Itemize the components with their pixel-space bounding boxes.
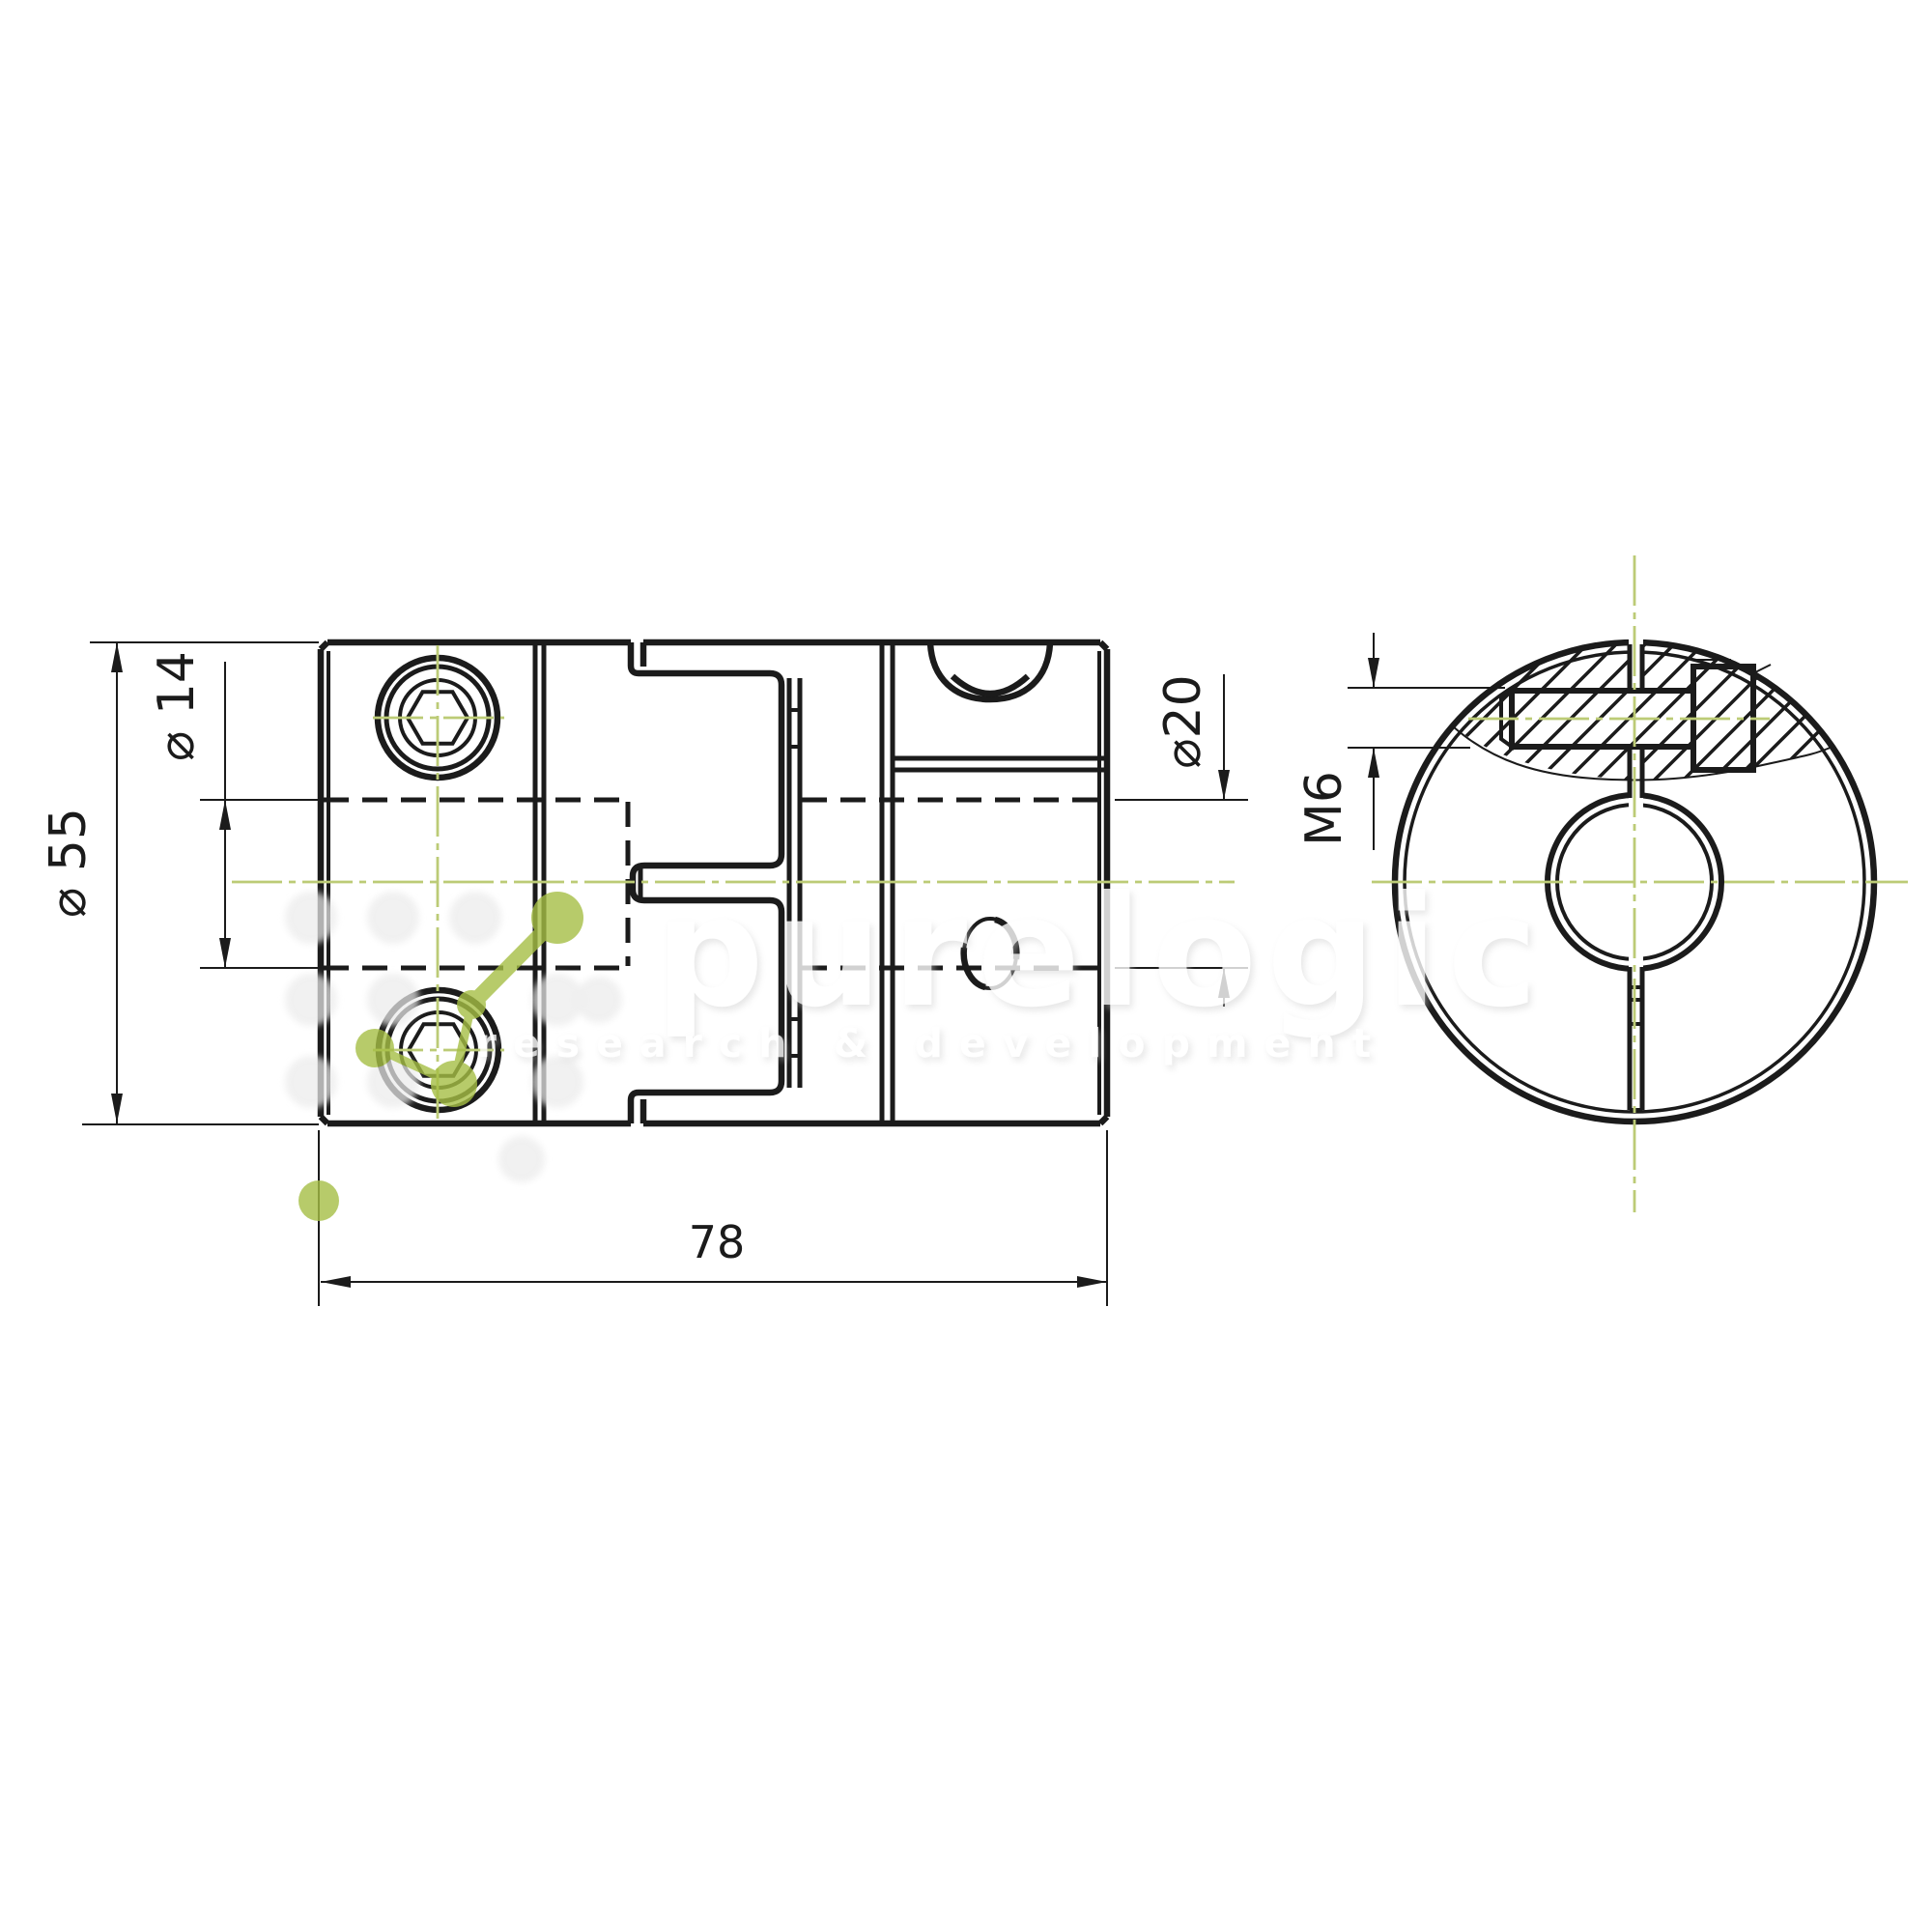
len78-label: 78 [689,1216,746,1268]
watermark-brand: purelogic purelogic [655,864,1550,1045]
technical-drawing-svg: ⌀ 55 ⌀ 14 ⌀20 M6 [0,0,1932,1932]
watermark-tagline: research & development research & develo… [477,1020,1391,1070]
set-screw-recess [893,643,1107,770]
dia55-label: ⌀ 55 [40,808,98,918]
svg-text:research & development: research & development [477,1020,1388,1066]
dia20-label: ⌀20 [1154,674,1212,768]
m6-label: M6 [1295,771,1353,846]
dimension-78: 78 [319,1130,1107,1306]
svg-text:purelogic: purelogic [655,864,1548,1041]
drawing-canvas: ⌀ 55 ⌀ 14 ⌀20 M6 [0,0,1932,1932]
dia14-label: ⌀ 14 [148,651,206,761]
